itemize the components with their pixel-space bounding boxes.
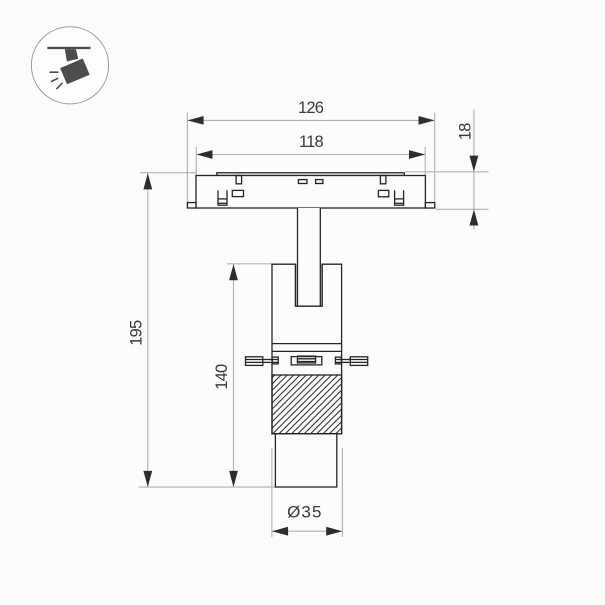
svg-text:18: 18	[456, 123, 474, 140]
svg-text:140: 140	[213, 364, 231, 390]
svg-text:Ø35: Ø35	[287, 503, 322, 522]
svg-text:126: 126	[298, 99, 324, 117]
svg-text:118: 118	[299, 133, 324, 151]
svg-text:195: 195	[128, 320, 146, 346]
